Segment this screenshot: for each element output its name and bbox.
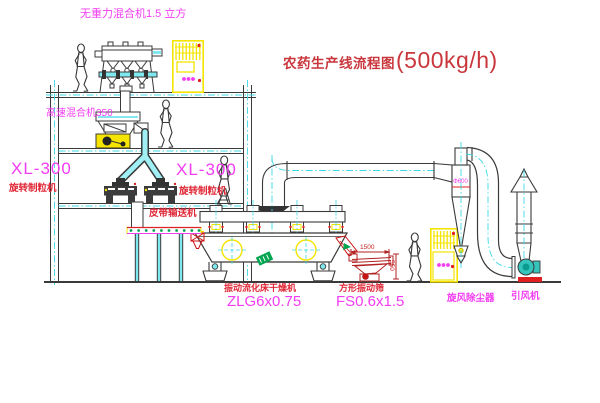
induced-draft-fan [512,257,542,283]
control-cabinet-2 [431,229,457,282]
control-cabinet-1 [173,41,203,92]
return-pipe [467,148,512,277]
gravity-free-mixer [95,42,162,92]
return-pipe-centerline [466,154,512,268]
high-speed-mixer [96,112,148,148]
diagram-title: 农药生产线流程图 (500kg/h) [283,47,498,74]
person-4 [407,233,422,281]
granulator-left [104,178,137,203]
vibrating-screen [349,249,399,281]
process-flow-diagram: 农药生产线流程图 (500kg/h) 无重力混合机1.5 立方 高速混合机350… [0,0,600,403]
title-chinese: 农药生产线流程图 [283,52,395,72]
fluid-bed-dryer [195,200,347,281]
person-3 [217,156,232,204]
belt-conveyor [127,228,201,282]
person-2 [158,100,172,147]
title-capacity: (500kg/h) [396,47,498,74]
mixer-chute [121,91,131,114]
granulator-right [144,178,177,203]
granulator-discharge-pipe [132,202,144,229]
person-1 [73,44,87,91]
